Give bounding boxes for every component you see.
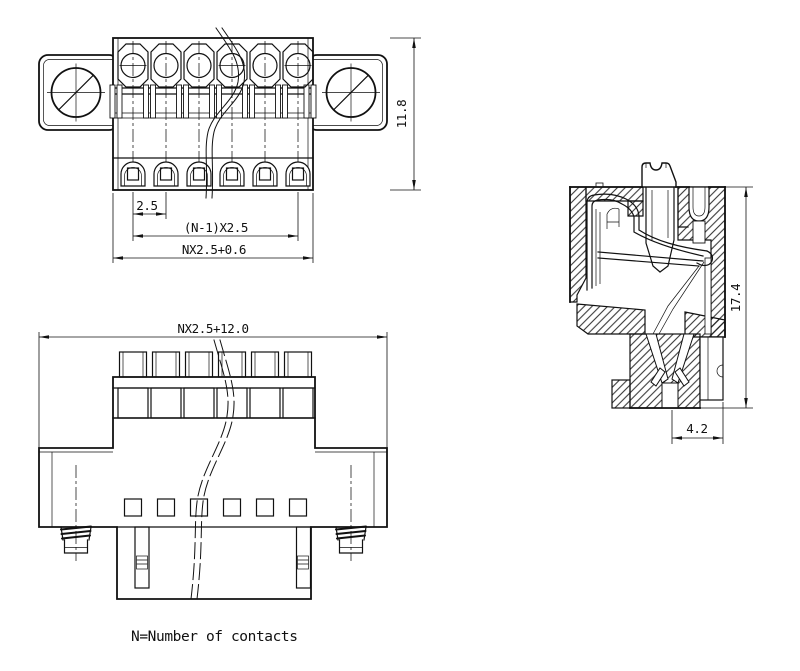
wire-entry-3 bbox=[187, 162, 211, 186]
dim-label-contact-span: (N-1)X2.5 bbox=[184, 220, 248, 235]
dim-label-contact-pitch: 2.5 bbox=[136, 198, 157, 213]
wire-entry-5 bbox=[253, 162, 277, 186]
front-view: 11.8 2.5 (N-1)X2.5 NX2.5+0.6 bbox=[39, 28, 421, 263]
terminal-bump bbox=[252, 352, 279, 377]
technical-drawing-sheet: 11.8 2.5 (N-1)X2.5 NX2.5+0.6 bbox=[0, 0, 800, 671]
dim-label-front-height: 11.8 bbox=[394, 100, 409, 129]
wire-entry-1 bbox=[121, 162, 145, 186]
plug-view: NX2.5+12.0 bbox=[39, 321, 387, 599]
wire-entry-6 bbox=[286, 162, 310, 186]
wire-entry-4 bbox=[220, 162, 244, 186]
terminal-bump bbox=[285, 352, 312, 377]
terminal-bump bbox=[219, 352, 246, 377]
funnel-throat bbox=[693, 221, 705, 243]
dim-contact-span: (N-1)X2.5 bbox=[133, 192, 298, 241]
drawing-note: N=Number of contacts bbox=[131, 629, 298, 645]
stem-step-section bbox=[612, 380, 630, 408]
dim-label-front-width: NX2.5+0.6 bbox=[182, 242, 246, 257]
right-flange-screw-hole bbox=[322, 64, 380, 122]
terminal-bump bbox=[153, 352, 180, 377]
wire-entry-2 bbox=[154, 162, 178, 186]
wall-channel bbox=[705, 258, 711, 334]
roof-section bbox=[586, 187, 643, 201]
left-wall-section bbox=[570, 187, 586, 302]
dim-front-height: 11.8 bbox=[390, 38, 421, 190]
dim-label-section-depth: 4.2 bbox=[686, 421, 707, 436]
section-view: 17.4 4.2 bbox=[570, 163, 753, 444]
terminal-block-drawing: 11.8 2.5 (N-1)X2.5 NX2.5+0.6 bbox=[0, 0, 800, 671]
terminal-bump bbox=[186, 352, 213, 377]
side-plate bbox=[700, 337, 723, 400]
roof-gusset-section bbox=[628, 201, 643, 216]
dim-label-plug-width: NX2.5+12.0 bbox=[177, 321, 248, 336]
terminal-bump bbox=[120, 352, 147, 377]
dim-contact-pitch: 2.5 bbox=[133, 192, 166, 241]
dim-label-section-height: 17.4 bbox=[728, 284, 743, 313]
screw-head-tab bbox=[642, 163, 676, 187]
floor-left-section bbox=[577, 304, 645, 334]
left-flange-screw-hole bbox=[47, 64, 105, 122]
plug-housing-outline bbox=[39, 377, 387, 599]
